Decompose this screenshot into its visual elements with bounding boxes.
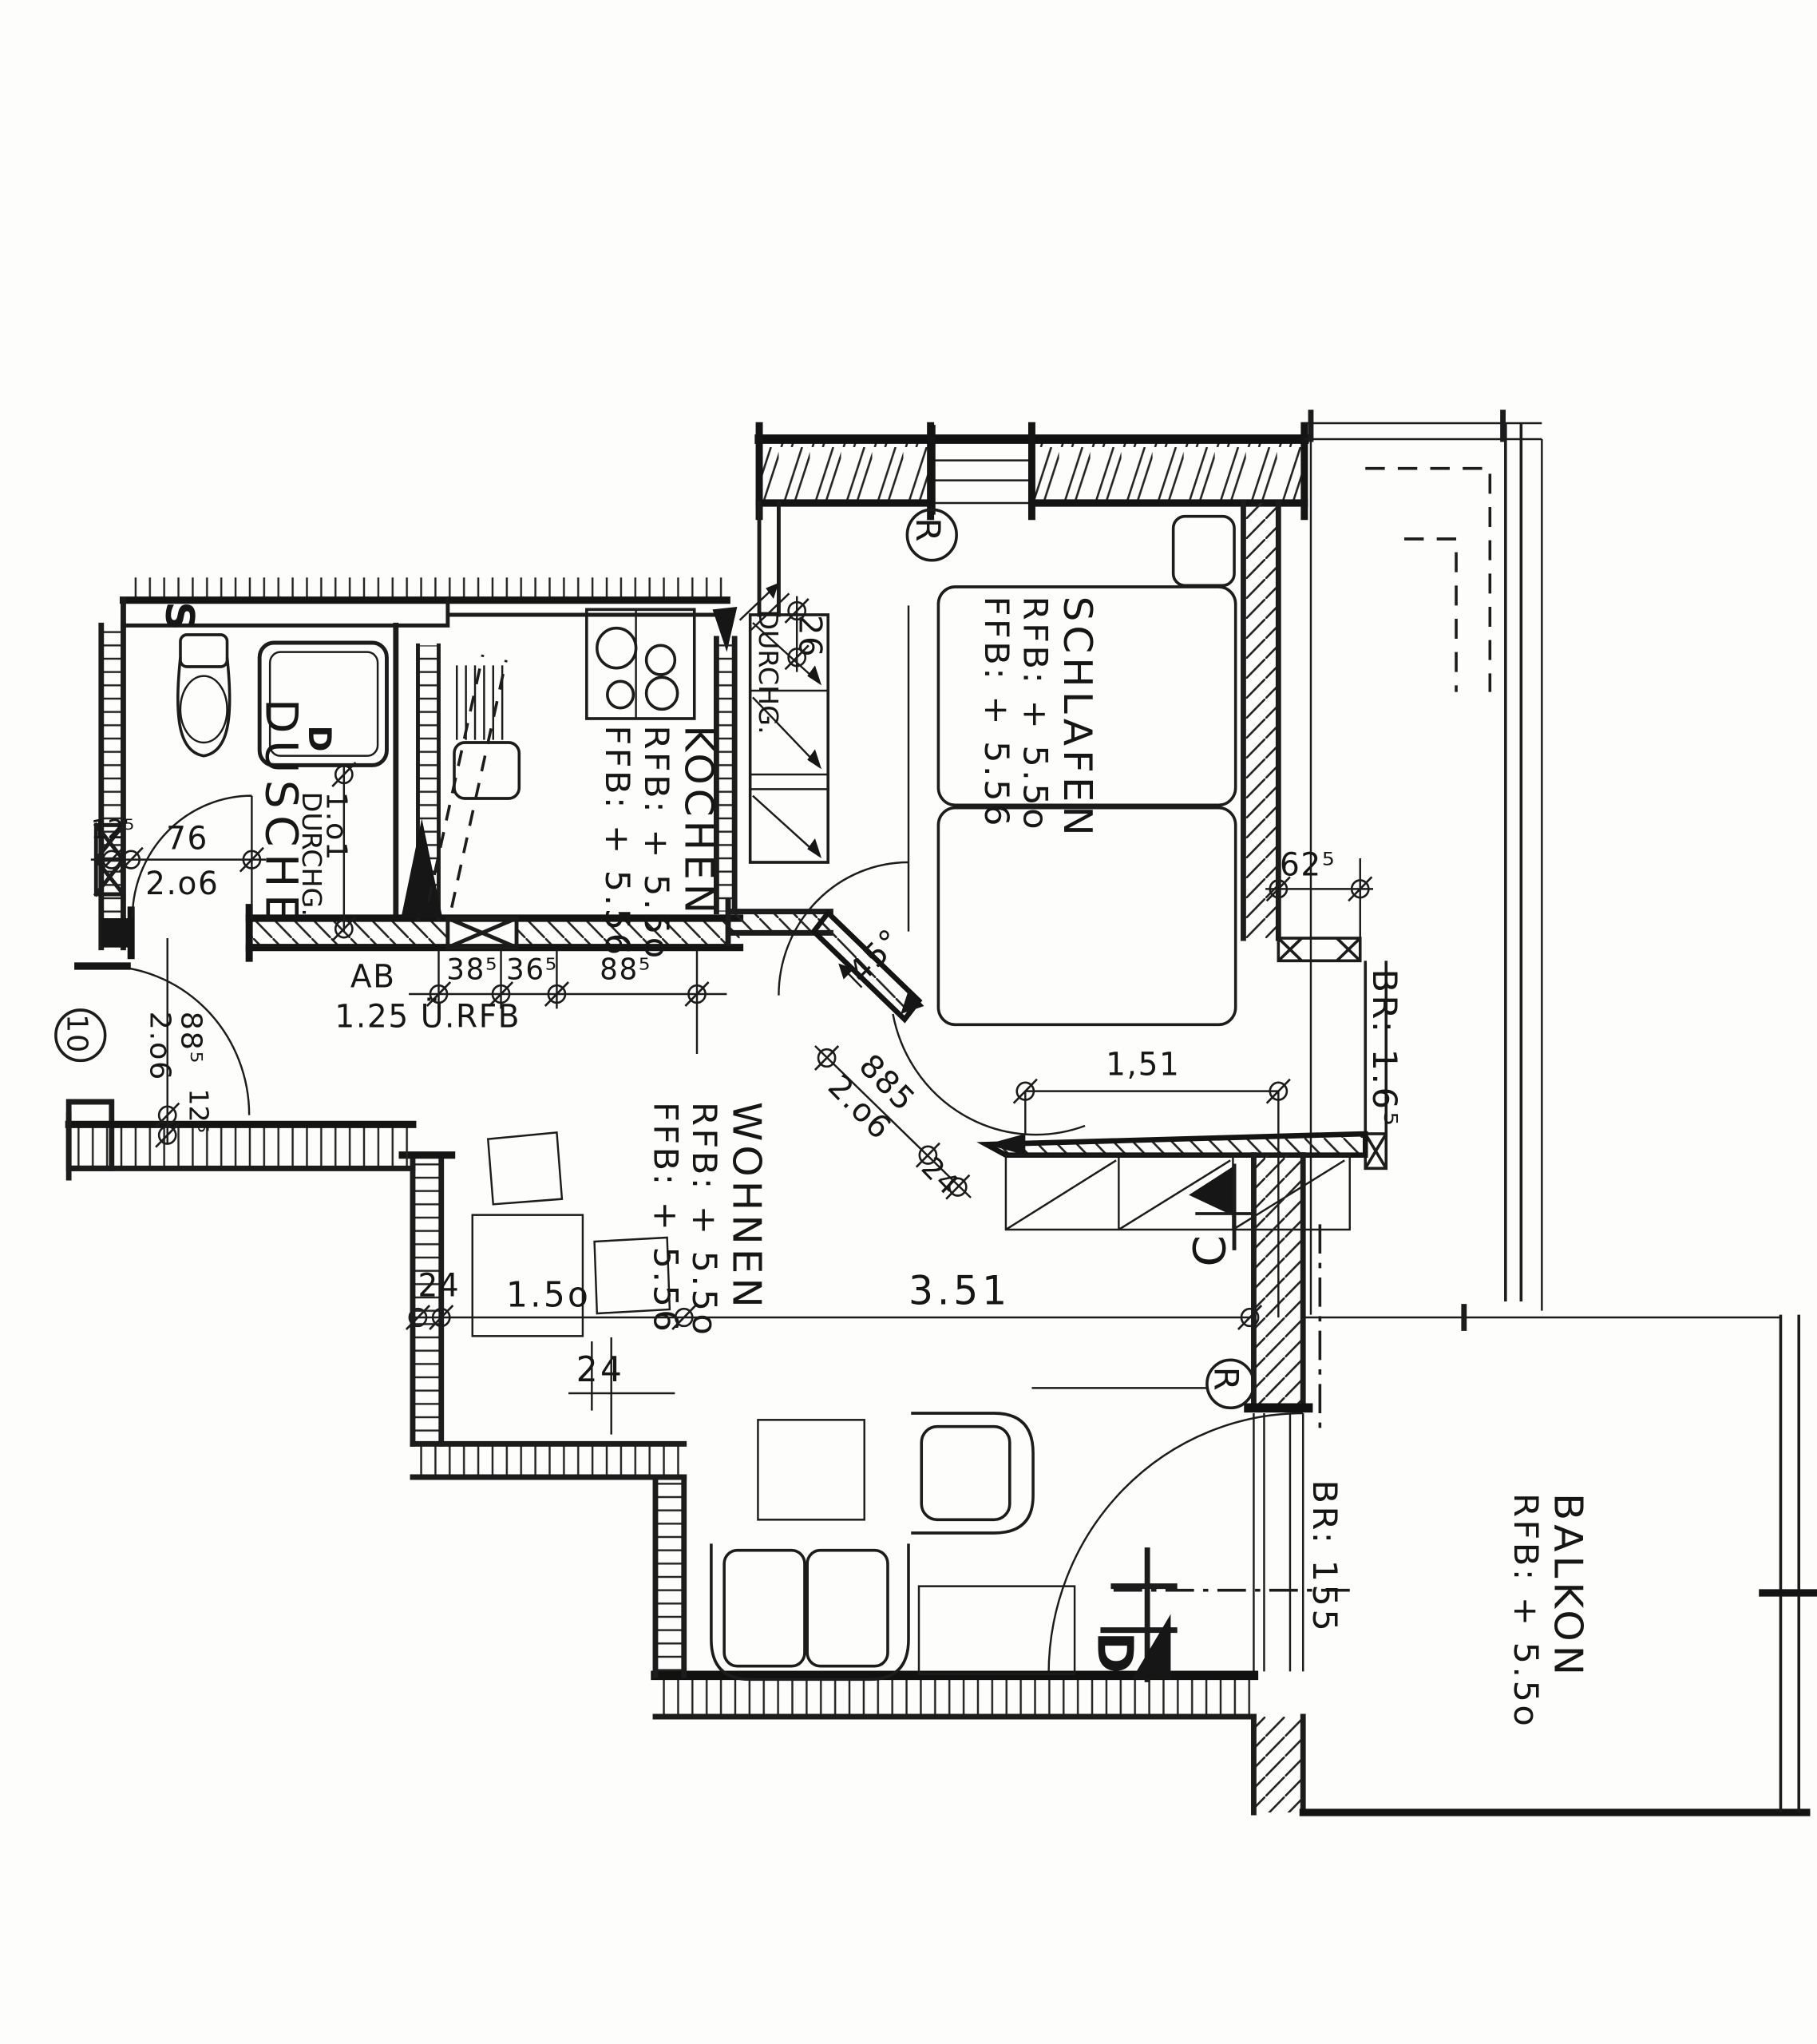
armchair-seat xyxy=(921,1427,1010,1520)
roof-dashed-inner xyxy=(1404,539,1456,692)
dim-marker xyxy=(1014,1079,1037,1103)
burner-1 xyxy=(597,628,636,668)
coffee-table xyxy=(758,1420,864,1519)
dim-marker xyxy=(685,982,708,1006)
wall-balcony-west xyxy=(1253,1717,1303,1812)
dim-door-br155: BR: 155 xyxy=(1304,1480,1344,1634)
wall-living-south xyxy=(655,1675,1253,1717)
marker-r-right: R xyxy=(1206,1367,1245,1393)
sideboard xyxy=(919,1586,1075,1674)
dim-marker xyxy=(1267,1079,1290,1103)
bed-2 xyxy=(938,808,1235,1025)
floor-plan-page: D S 12⁵ 76 2.o6 1.o1 DURCHG. DUSCH xyxy=(0,0,1817,2044)
wall-south-stub xyxy=(101,918,131,948)
room-schlafen-rfb: RFB: + 5.5o xyxy=(1015,596,1055,832)
dim-seg-365: 36⁵ xyxy=(506,952,558,987)
wardrobe-arrowhead-2 xyxy=(807,749,821,769)
s-symbol: S xyxy=(156,601,202,634)
room-label-kochen: KOCHEN xyxy=(676,725,722,917)
dim-150: 1.5o xyxy=(506,1275,591,1316)
dim-marker xyxy=(1348,877,1372,901)
upper-balcony-railing xyxy=(1506,423,1522,1301)
room-label-dusche: DUSCHE xyxy=(255,699,306,929)
wardrobe-arrowhead-3 xyxy=(807,838,821,858)
window-br165-x xyxy=(1365,1134,1386,1168)
wall-bedroom-top-left xyxy=(759,439,931,503)
dim-bath-door-w: 76 xyxy=(166,820,208,858)
shower-drain-label: D xyxy=(301,725,337,753)
dim-marker xyxy=(786,645,809,669)
wall-bedroom-top-right xyxy=(1031,439,1304,503)
armchair-back xyxy=(911,1413,1033,1533)
dim-diagonal-texts: 885 2.o6 24 xyxy=(821,1041,986,1210)
dim-ab-height: 1.25 Ü.RFB xyxy=(335,998,521,1036)
wall-dusche-west xyxy=(101,625,124,947)
dim-wall-24: 24 xyxy=(418,1267,460,1305)
room-balkon-rfb: RFB: + 5.5o xyxy=(1506,1493,1545,1729)
upper-balcony-dim-ticks xyxy=(1311,413,1503,439)
dim-bath-wall: 12⁵ xyxy=(91,814,134,845)
balcony-door-frame xyxy=(1253,1413,1303,1671)
dim-win-625: 62⁵ xyxy=(1280,846,1336,884)
burner-4 xyxy=(647,677,678,709)
door-living-diagonal-arc xyxy=(893,1014,1085,1135)
room-label-wohnen: WOHNEN xyxy=(724,1102,770,1312)
section-c-label: C xyxy=(1185,1229,1236,1267)
dim-seg-385: 38⁵ xyxy=(446,952,498,987)
sofa-cushion-2 xyxy=(807,1551,888,1666)
window-bedroom-top xyxy=(931,461,1032,503)
room-wohnen-ffb: FFB: + 5.56 xyxy=(645,1102,684,1334)
section-d-label: D xyxy=(1087,1631,1144,1674)
dim-win-151: 1,51 xyxy=(1106,1046,1180,1083)
toilet-tank xyxy=(180,635,228,667)
sink-basin xyxy=(454,743,519,798)
dim-seg-885: 88⁵ xyxy=(600,952,651,987)
dim-entry-door-h: 2.o6 xyxy=(144,1012,177,1081)
room-label-balkon: BALKON xyxy=(1546,1493,1591,1679)
marker-r-top: R xyxy=(908,517,947,544)
axis-circle-label: 10 xyxy=(61,1014,94,1054)
dim-kitchen-pass-label: DURCHG. xyxy=(753,609,784,734)
wardrobe-arrowhead-1 xyxy=(807,665,821,685)
wall-living-step xyxy=(413,1444,684,1477)
burner-3 xyxy=(608,681,634,707)
window-625-x xyxy=(1278,938,1360,961)
toilet-bowl-outer xyxy=(178,657,230,755)
room-kochen-ffb: FFB: + 5.56 xyxy=(597,725,636,957)
dim-351: 3.51 xyxy=(908,1267,1011,1314)
room-kochen-rfb: RFB: + 5.5o xyxy=(636,725,675,961)
room-wohnen-rfb: RFB: + 5.5o xyxy=(684,1102,723,1337)
burner-2 xyxy=(647,645,675,675)
roof-dashed-outer xyxy=(1365,469,1490,692)
nightstand xyxy=(1174,517,1234,586)
room-schlafen-ffb: FFB: + 5.56 xyxy=(976,596,1015,829)
window-south-x xyxy=(448,918,517,948)
room-label-schlafen: SCHLAFEN xyxy=(1055,596,1100,840)
balcony-right-railing xyxy=(1780,1315,1799,1812)
floor-plan-drawing: D S 12⁵ 76 2.o6 1.o1 DURCHG. DUSCH xyxy=(0,0,1817,2044)
dim-post-24: 24 xyxy=(576,1350,624,1391)
dim-ab-label: AB xyxy=(350,958,396,996)
section-c-arrow xyxy=(1189,1166,1234,1216)
dining-chair-top xyxy=(488,1132,562,1204)
dim-win-br165: BR: 1.6⁵ xyxy=(1364,969,1403,1128)
dim-line-151 xyxy=(1025,1091,1278,1317)
dim-entry-door-w: 88⁵ xyxy=(175,1012,208,1064)
wall-bedroom-east xyxy=(1243,503,1278,938)
dim-bath-door-h: 2.o6 xyxy=(145,866,219,903)
wall-living-west-lower xyxy=(655,1477,684,1675)
wall-south-caps xyxy=(131,908,249,958)
wall-entry-south xyxy=(69,1124,413,1168)
toilet-bowl-inner xyxy=(180,676,228,743)
sofa-cushion-1 xyxy=(724,1551,805,1666)
dim-entry-wall: 12⁵ xyxy=(183,1088,214,1133)
wall-pointed xyxy=(987,1134,1366,1155)
